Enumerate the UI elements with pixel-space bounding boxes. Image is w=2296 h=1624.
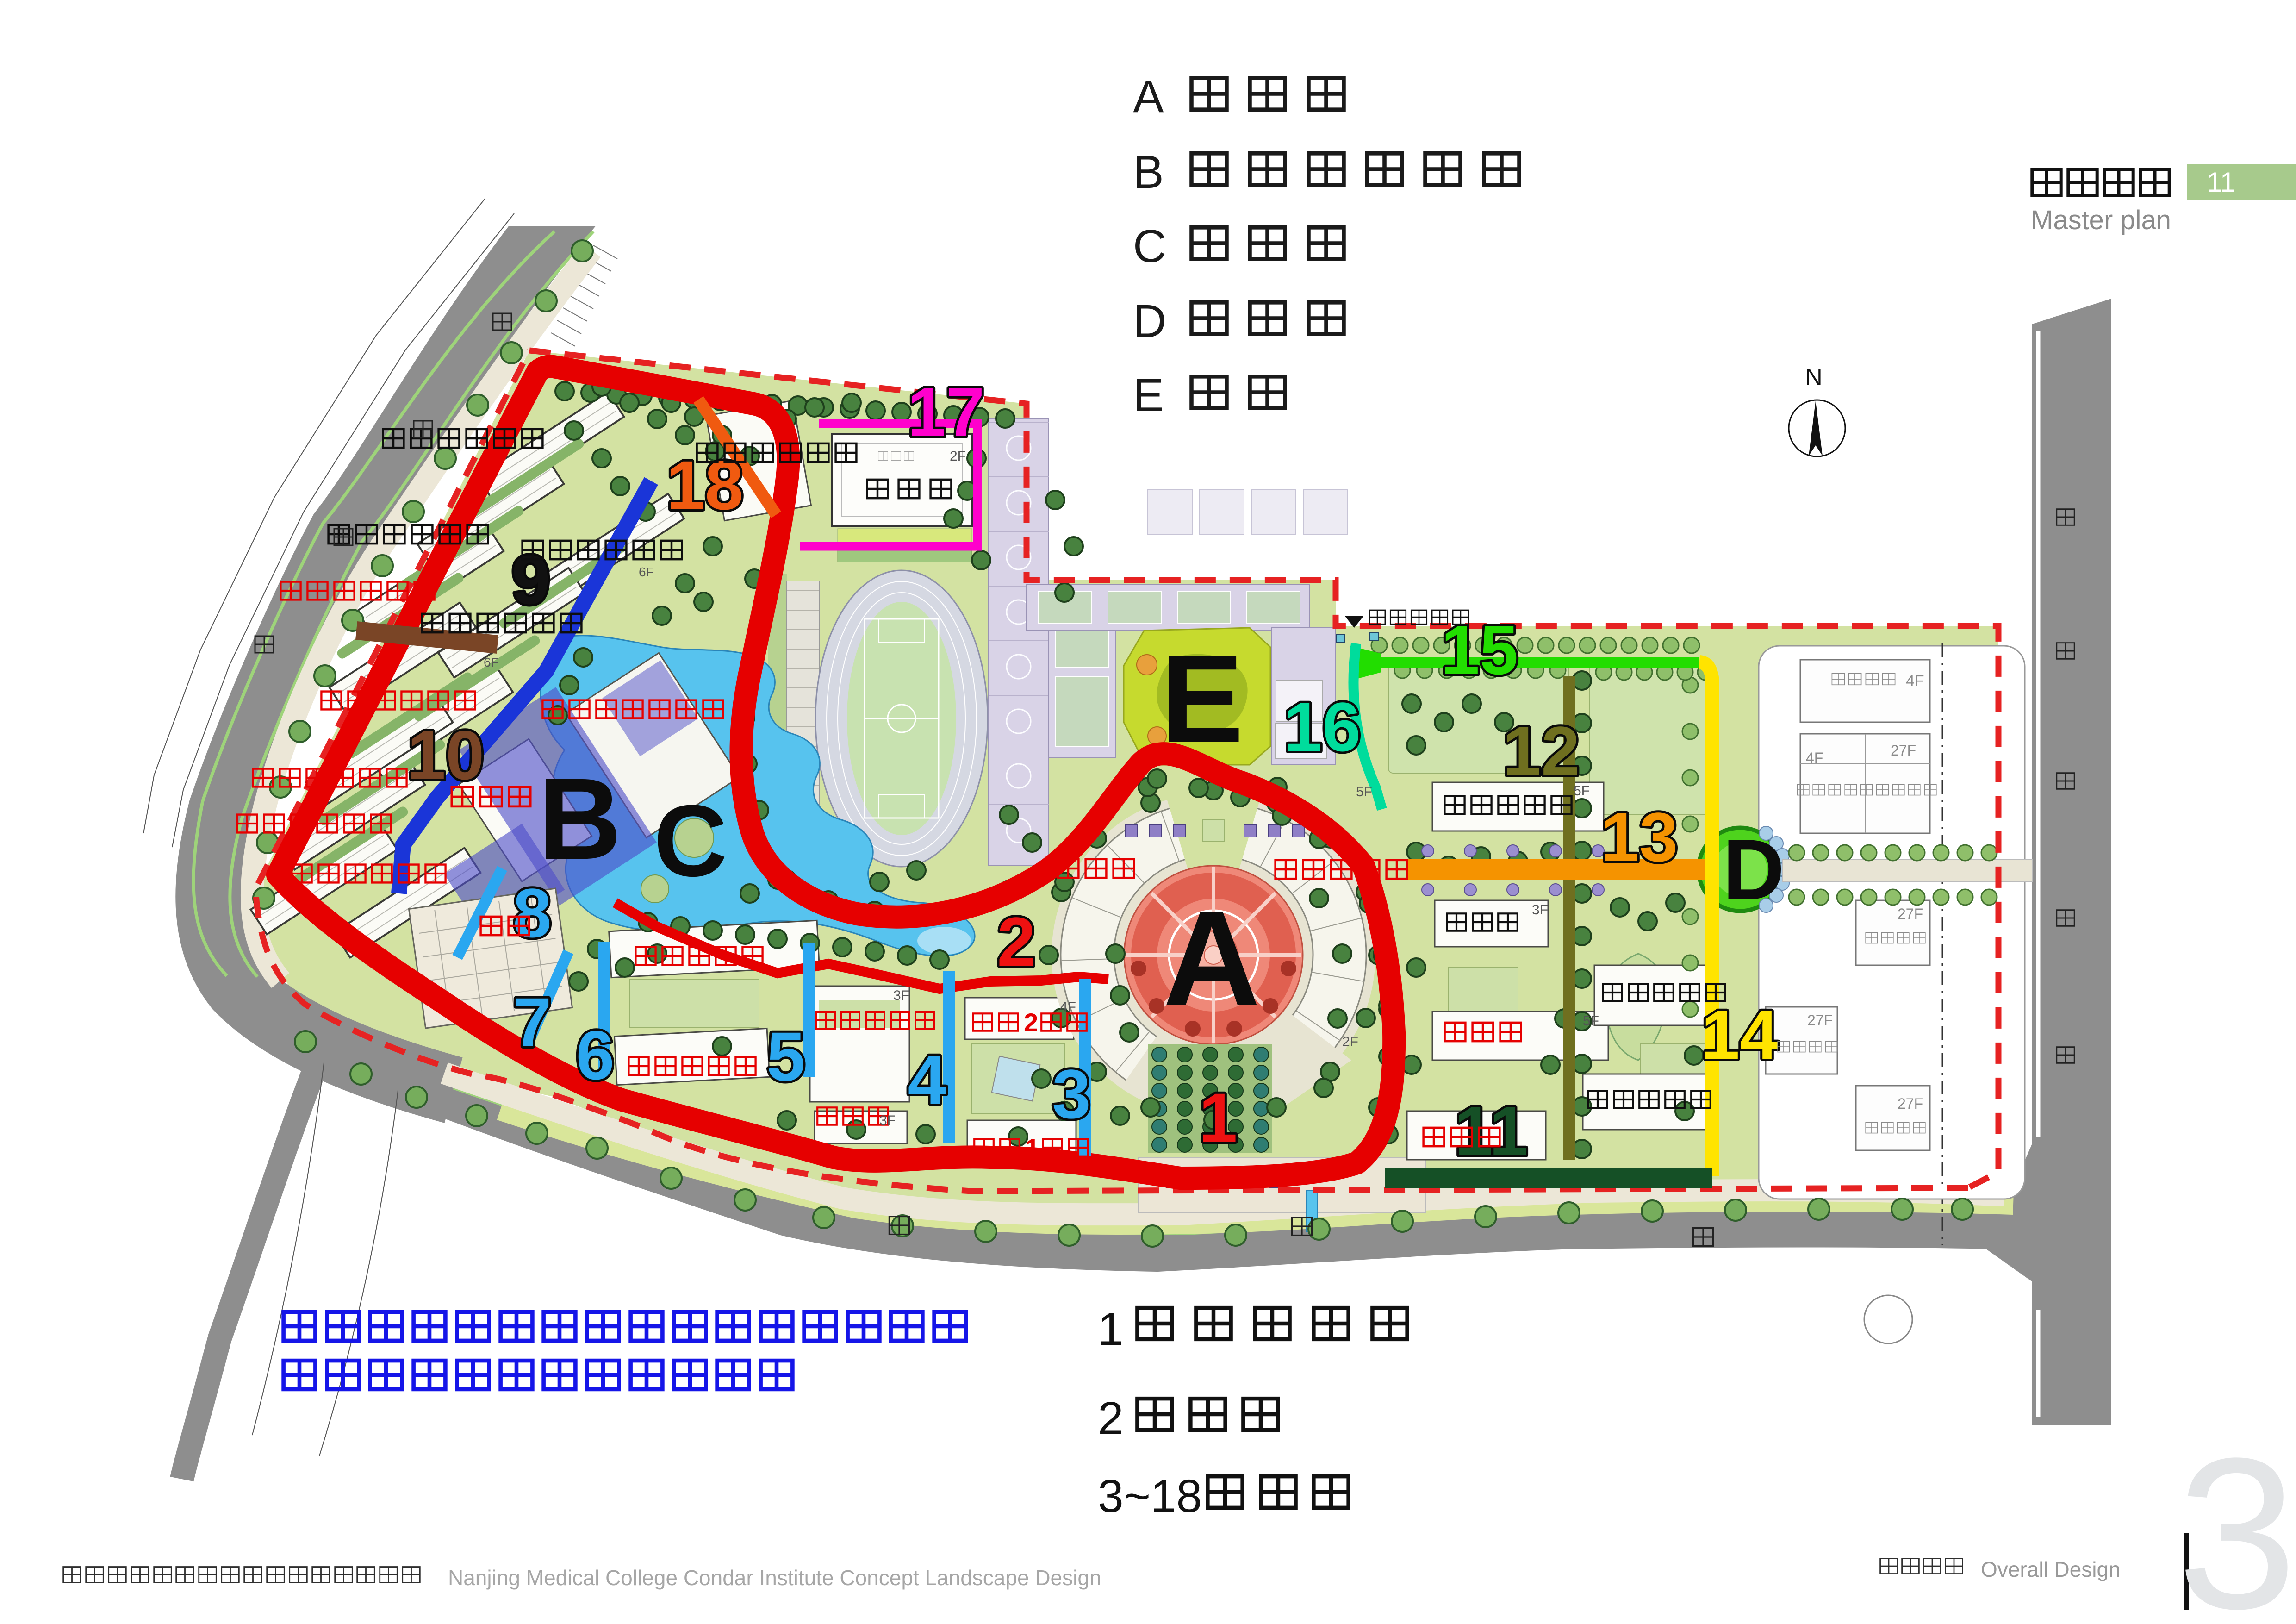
svg-text:14: 14	[1701, 996, 1779, 1074]
svg-text:17: 17	[908, 373, 985, 451]
svg-text:6F: 6F	[484, 655, 499, 669]
svg-text:13: 13	[1601, 798, 1678, 876]
svg-text:4: 4	[908, 1041, 946, 1118]
svg-text:4F: 4F	[1906, 672, 1924, 690]
svg-text:16: 16	[1284, 688, 1361, 766]
svg-text:27F: 27F	[1898, 1095, 1923, 1112]
svg-text:3~18: 3~18	[1098, 1470, 1202, 1522]
svg-text:3: 3	[2177, 1413, 2296, 1624]
svg-text:5F: 5F	[1356, 784, 1372, 800]
svg-text:5F: 5F	[1583, 1013, 1599, 1029]
svg-text:Master plan: Master plan	[2031, 205, 2171, 235]
svg-text:A: A	[1163, 883, 1260, 1033]
svg-text:27F: 27F	[1891, 742, 1916, 759]
svg-text:18: 18	[666, 446, 744, 524]
svg-text:B: B	[538, 754, 622, 883]
svg-text:6: 6	[576, 1016, 614, 1094]
svg-text:3F: 3F	[879, 1113, 896, 1128]
svg-text:8: 8	[513, 874, 551, 952]
svg-text:4F: 4F	[1060, 999, 1076, 1015]
svg-text:A: A	[1133, 71, 1164, 123]
svg-text:D: D	[1723, 822, 1785, 918]
svg-text:3F: 3F	[1532, 902, 1548, 918]
svg-text:7: 7	[513, 983, 551, 1061]
svg-text:2F: 2F	[1342, 1034, 1358, 1049]
svg-text:6F: 6F	[639, 565, 654, 579]
svg-text:1: 1	[1025, 1133, 1039, 1162]
svg-text:11: 11	[1455, 1092, 1528, 1170]
svg-text:E: E	[1133, 369, 1164, 421]
svg-text:Overall Design: Overall Design	[1981, 1557, 2121, 1581]
svg-text:5F: 5F	[1574, 783, 1590, 799]
svg-text:27F: 27F	[1807, 1012, 1833, 1029]
svg-text:9: 9	[511, 541, 550, 618]
svg-text:10: 10	[407, 716, 485, 794]
svg-text:N: N	[1805, 364, 1823, 391]
svg-text:5: 5	[766, 1018, 805, 1095]
svg-text:3: 3	[1052, 1055, 1090, 1133]
svg-text:3F: 3F	[893, 988, 909, 1003]
svg-text:C: C	[654, 784, 728, 898]
svg-text:1: 1	[1199, 1079, 1237, 1156]
svg-text:2: 2	[997, 903, 1035, 981]
svg-text:12: 12	[1503, 712, 1580, 790]
svg-text:C: C	[1133, 220, 1166, 272]
svg-text:B: B	[1133, 146, 1164, 198]
svg-text:2: 2	[1024, 1008, 1038, 1037]
svg-text:11: 11	[2207, 167, 2235, 198]
svg-text:4F: 4F	[1806, 750, 1823, 766]
svg-text:D: D	[1133, 295, 1166, 347]
svg-text:1: 1	[1098, 1303, 1124, 1355]
svg-text:27F: 27F	[1898, 906, 1923, 922]
svg-text:2: 2	[1098, 1393, 1124, 1444]
svg-text:Nanjing Medical College Condar: Nanjing Medical College Condar Institute…	[448, 1566, 1101, 1590]
